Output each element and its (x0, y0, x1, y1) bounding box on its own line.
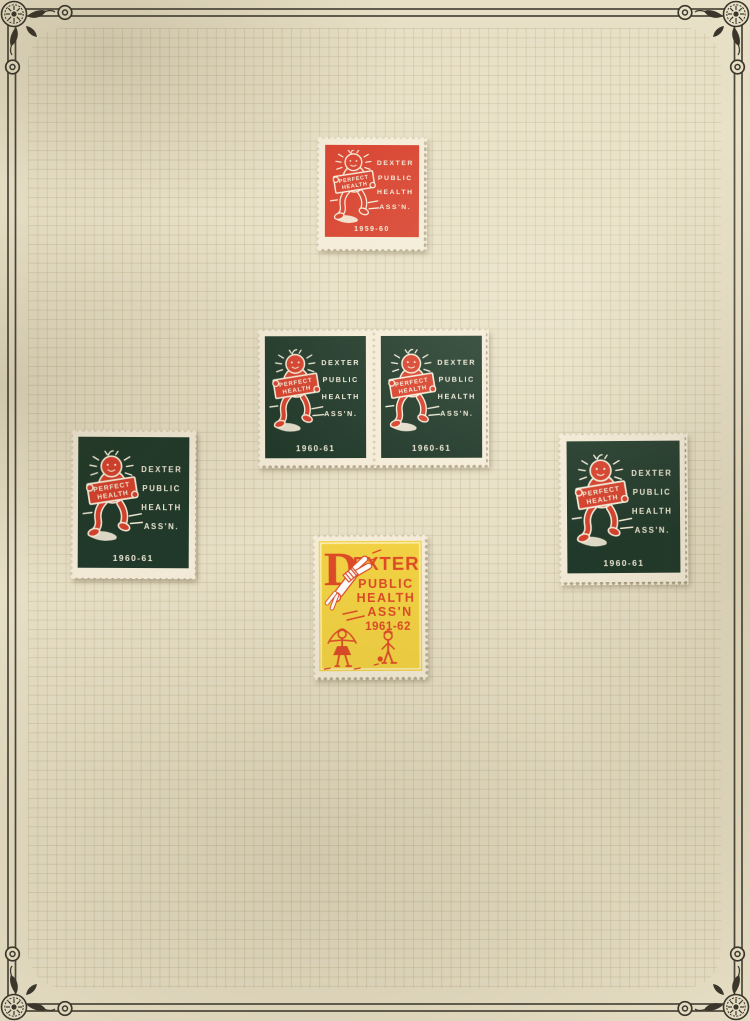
stamp-art-green-pair-left: DEXTER PUBLIC HEALTH ASS'N. 1960-61 (265, 336, 366, 458)
album-page: PERFECT HEALTH DEXTER PUBLIC HEALTH ASS'… (0, 0, 750, 1021)
org-name-lines: DEXTER PUBLIC HEALTH ASS'N. (137, 460, 186, 536)
year-label: 1960-61 (265, 444, 366, 453)
stamp-yellow-1961-62: D EXTER PUBLIC HEALTH ASS'N 1961-62 (313, 535, 429, 681)
org-line: DEXTER (375, 157, 416, 172)
org-name-lines: DEXTER PUBLIC HEALTH ASS'N. (627, 464, 677, 540)
yellow-seal-graphic: D EXTER PUBLIC HEALTH ASS'N 1961-62 (319, 541, 423, 671)
org-line: ASS'N. (319, 405, 363, 422)
stamp-art-green-pair-right: DEXTER PUBLIC HEALTH ASS'N. 1960-61 (381, 336, 482, 458)
org-line: DEXTER (434, 354, 478, 371)
stamp-red-1959-60: DEXTER PUBLIC HEALTH ASS'N. 1959-60 (317, 137, 427, 251)
corner-rosette-bottom-left (2, 947, 72, 1019)
org-line: ASS'N. (627, 521, 677, 540)
stamp-pair-1960-61: DEXTER PUBLIC HEALTH ASS'N. 1960-61 DEXT… (258, 329, 489, 469)
org-line: ASS'N. (375, 201, 416, 216)
corner-rosette-top-right (678, 2, 748, 74)
org-line: HEALTH (137, 498, 186, 517)
stamp-green-right-1960-61: DEXTER PUBLIC HEALTH ASS'N. 1960-61 (558, 433, 688, 586)
baby-with-sign-graphic (568, 448, 637, 557)
org-line: PUBLIC (137, 479, 186, 498)
girl-jumping-rope-graphic (324, 629, 360, 669)
org-line: HEALTH (435, 388, 479, 405)
org-line: DEXTER (137, 460, 186, 479)
year-label: 1959-60 (325, 226, 419, 233)
year-label: 1960-61 (381, 444, 482, 453)
org-name-lines: DEXTER PUBLIC HEALTH ASS'N. (318, 354, 363, 422)
org-line: PUBLIC (318, 371, 362, 388)
corner-rosette-bottom-right (678, 947, 748, 1019)
stamp-art-green: DEXTER PUBLIC HEALTH ASS'N. 1960-61 (78, 437, 190, 569)
perforation-divider (369, 331, 377, 466)
org-line: HEALTH (319, 388, 363, 405)
org-line: DEXTER (627, 464, 677, 483)
boy-with-ball-graphic (374, 631, 396, 665)
org-line: HEALTH (375, 186, 416, 201)
year-label: 1960-61 (567, 558, 680, 569)
corner-rosette-top-left (2, 2, 72, 74)
org-line: DEXTER (318, 354, 362, 371)
stamp-art-green: DEXTER PUBLIC HEALTH ASS'N. 1960-61 (567, 441, 681, 574)
org-line: ASS'N. (137, 517, 186, 536)
org-line: PUBLIC (375, 172, 416, 187)
org-name-lines: DEXTER PUBLIC HEALTH ASS'N. (375, 157, 417, 215)
org-line: HEALTH (627, 502, 677, 521)
stamp-green-left-1960-61: DEXTER PUBLIC HEALTH ASS'N. 1960-61 (71, 430, 197, 580)
org-line: PUBLIC (434, 371, 478, 388)
stamp-art-red: DEXTER PUBLIC HEALTH ASS'N. 1959-60 (325, 145, 419, 237)
year-label: 1960-61 (78, 553, 189, 564)
baby-with-sign-graphic (79, 443, 146, 551)
line-public: PUBLIC (358, 577, 414, 591)
line-health: HEALTH (357, 591, 416, 605)
org-name-lines: DEXTER PUBLIC HEALTH ASS'N. (434, 354, 479, 422)
org-line: ASS'N. (435, 405, 479, 422)
line-assn: ASS'N (367, 605, 412, 619)
stamp-art-yellow: D EXTER PUBLIC HEALTH ASS'N 1961-62 (319, 541, 423, 671)
org-line: PUBLIC (627, 483, 677, 502)
